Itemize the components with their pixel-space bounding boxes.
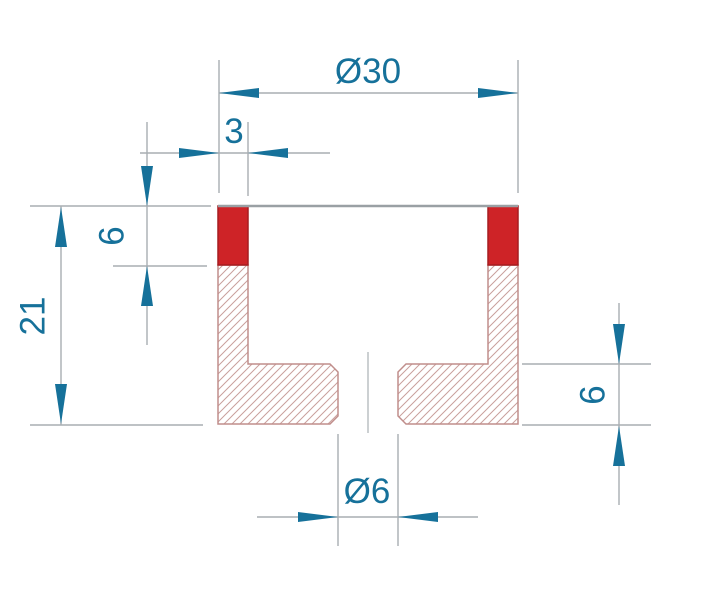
right-red-rim-block: [488, 206, 518, 265]
arrow-overall-height-top-icon: [55, 207, 67, 247]
label-base-thickness: 6: [574, 385, 613, 404]
extension-and-dimension-lines: [30, 60, 651, 546]
arrow-rim-height-top-icon: [141, 166, 153, 206]
arrow-rim-height-bottom-icon: [141, 266, 153, 306]
arrow-wall-thickness-right-icon: [248, 148, 288, 158]
rim-inserts: [218, 206, 518, 265]
left-wall-and-base-section: [218, 265, 338, 424]
arrow-wall-thickness-left-icon: [179, 148, 219, 158]
section-drawing: Ø30 3 6 21 6 Ø6: [0, 0, 701, 600]
label-overall-height: 21: [14, 297, 53, 336]
right-wall-and-base-section: [398, 265, 518, 424]
arrow-bore-dia-left-icon: [298, 512, 338, 522]
technical-drawing-canvas: Ø30 3 6 21 6 Ø6: [0, 0, 701, 600]
arrow-base-thickness-top-icon: [613, 324, 625, 364]
arrow-bore-dia-right-icon: [398, 512, 438, 522]
dimension-labels: Ø30 3 6 21 6 Ø6: [14, 52, 613, 511]
arrow-outer-dia-right-icon: [478, 88, 518, 98]
label-outer-diameter: Ø30: [335, 52, 401, 91]
arrow-overall-height-bottom-icon: [55, 384, 67, 424]
label-wall-thickness: 3: [224, 112, 243, 151]
arrow-outer-dia-left-icon: [219, 88, 259, 98]
left-red-rim-block: [218, 206, 248, 265]
arrow-base-thickness-bottom-icon: [613, 426, 625, 466]
label-bore-diameter: Ø6: [344, 472, 391, 511]
label-rim-height: 6: [93, 226, 132, 245]
